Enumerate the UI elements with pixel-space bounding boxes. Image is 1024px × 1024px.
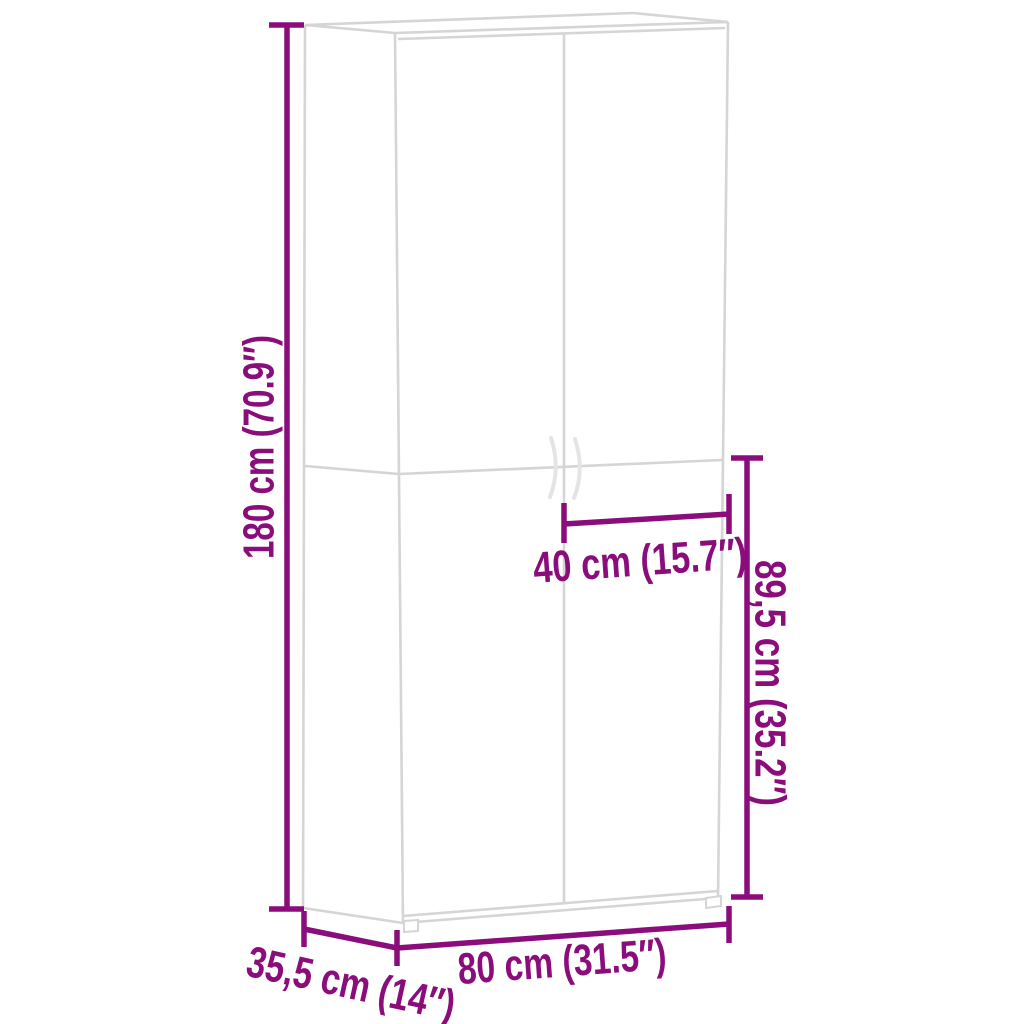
cabinet-right-foot: [706, 896, 721, 908]
dimension-height-label: 180 cm (70.9″): [235, 335, 284, 559]
cabinet-side-bottom-edge: [303, 908, 403, 923]
cabinet-back-left-edge: [303, 25, 305, 908]
dimension-lower-section-height: 89,5 cm (35.2″): [731, 458, 795, 897]
dimension-height: 180 cm (70.9″): [235, 25, 305, 909]
dimension-depth: 35,5 cm (14″): [242, 911, 460, 1024]
cabinet-top-left-edge: [305, 25, 395, 33]
cabinet-front-left-edge: [395, 33, 403, 923]
door-bottom-seam: [403, 891, 718, 916]
cabinet-wireframe: [303, 13, 728, 932]
dimension-lower-section-height-label: 89,5 cm (35.2″): [746, 560, 795, 806]
diagram-canvas: 180 cm (70.9″) 40 cm (15.7″) 89,5 cm (35…: [0, 0, 1024, 1024]
cabinet-top-right-edge: [633, 13, 728, 22]
cabinet-front-bottom-edge: [403, 898, 718, 923]
dimension-door-width: 40 cm (15.7″): [532, 494, 749, 593]
cabinet-top-back-edge: [305, 13, 633, 25]
door-top-seam: [398, 28, 725, 39]
right-door-handle-icon: [574, 439, 580, 498]
cabinet-front-top-edge: [395, 22, 728, 33]
side-mid-seam: [305, 466, 399, 474]
dimension-depth-label: 35,5 cm (14″): [242, 937, 460, 1024]
cabinet-left-foot: [404, 920, 418, 932]
front-mid-seam: [399, 460, 722, 474]
cabinet-dimension-diagram: 180 cm (70.9″) 40 cm (15.7″) 89,5 cm (35…: [0, 0, 1024, 1024]
